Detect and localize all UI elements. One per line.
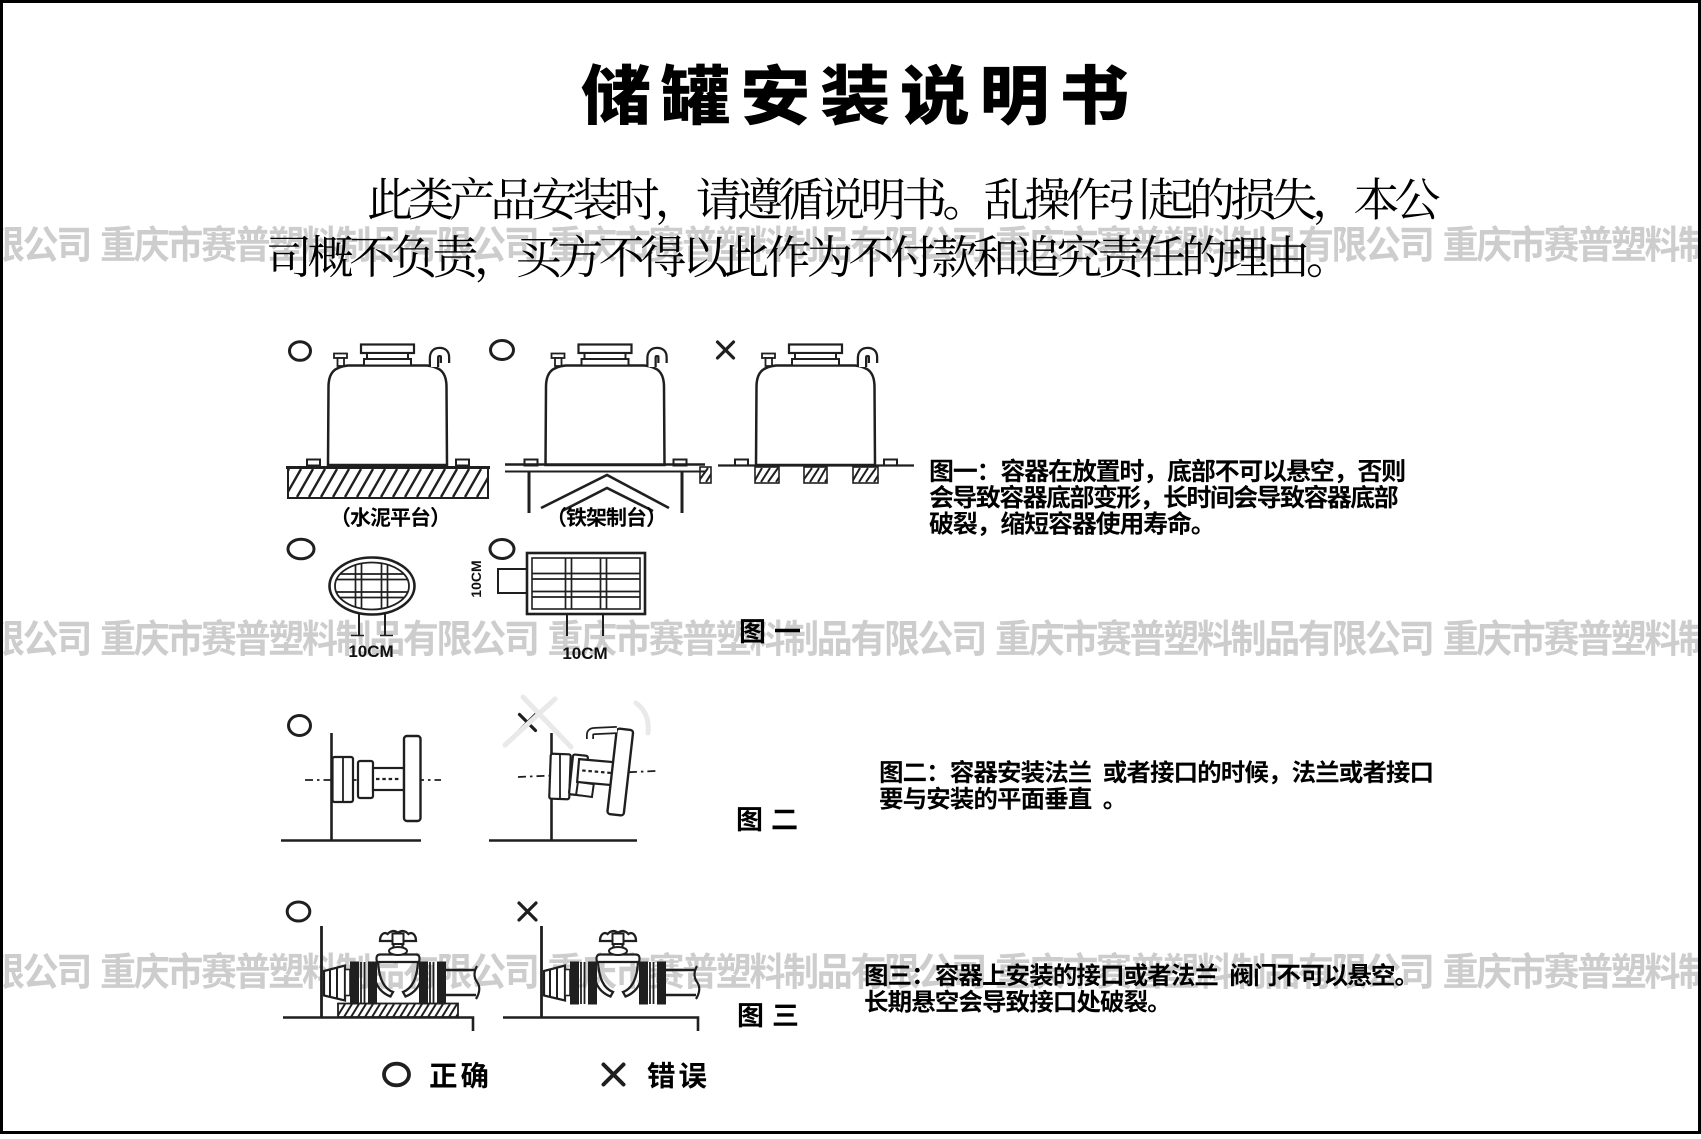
- svg-text:10CM: 10CM: [348, 642, 393, 661]
- svg-text:10CM: 10CM: [468, 560, 484, 597]
- svg-text:10CM: 10CM: [562, 644, 607, 663]
